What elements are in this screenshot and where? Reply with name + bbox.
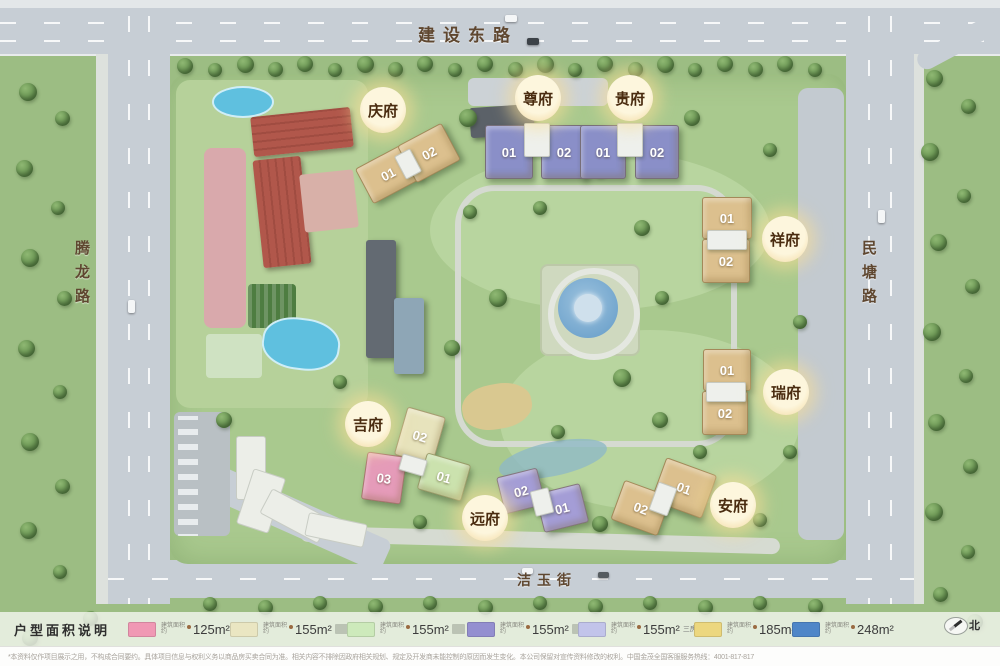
tree: [963, 459, 978, 474]
legend-area-prefix: 建筑面积约: [263, 623, 289, 636]
tree: [388, 62, 403, 77]
estate-badge[interactable]: 尊府: [515, 75, 561, 121]
right-road-label: 民塘路: [858, 240, 879, 312]
tree: [423, 596, 437, 610]
tree: [961, 545, 975, 559]
tree: [237, 56, 254, 73]
tree: [933, 587, 948, 602]
estate-badge[interactable]: 庆府: [360, 87, 406, 133]
swimming-pool-north: [212, 86, 274, 118]
bottom-road-label: 洁玉街: [502, 570, 592, 590]
tree: [268, 62, 283, 77]
tree: [208, 63, 222, 77]
legend-area-value: 125m²: [193, 622, 230, 637]
tree: [444, 340, 460, 356]
fountain-center: [574, 294, 602, 322]
legend-area-prefix: 建筑面积约: [161, 623, 187, 636]
legend-dot-icon: [526, 625, 530, 629]
tree: [508, 62, 523, 77]
legend-area-value: 155m²: [412, 622, 449, 637]
legend-item: 建筑面积约155m²: [347, 619, 465, 639]
tree: [693, 445, 707, 459]
legend-dot-icon: [187, 625, 191, 629]
tree: [808, 63, 822, 77]
tree: [763, 143, 777, 157]
tree: [753, 596, 767, 610]
legend-title: 户型面积说明: [14, 620, 110, 639]
legend-swatch: [128, 622, 156, 637]
tree: [930, 234, 947, 251]
tree: [688, 63, 702, 77]
tree: [463, 205, 477, 219]
sidewalk-left: [96, 54, 108, 604]
left-road: [108, 8, 170, 604]
right-road: [846, 8, 914, 604]
car: [878, 210, 885, 223]
tree: [568, 63, 582, 77]
running-track: [204, 148, 246, 328]
tree: [297, 56, 313, 72]
tree: [926, 70, 943, 87]
car: [598, 572, 609, 578]
tree: [533, 201, 547, 215]
tree: [684, 110, 700, 126]
elevator-core: [617, 123, 643, 157]
top-road-label: 建设东路: [398, 21, 538, 46]
legend-item: 建筑面积约155m²: [467, 619, 585, 639]
legend-dot-icon: [289, 625, 293, 629]
site-plan-map: 0102010201020102010201020201030201 庆府尊府贵…: [0, 0, 1000, 666]
legend-dot-icon: [753, 625, 757, 629]
legend-area-prefix: 建筑面积约: [611, 623, 637, 636]
tree: [652, 412, 668, 428]
tree: [592, 516, 608, 532]
legend-area-value: 155m²: [532, 622, 569, 637]
legend-dot-icon: [851, 625, 855, 629]
tree: [777, 56, 793, 72]
school-courtyard: [299, 169, 359, 232]
legend-item: 建筑面积约155m²三房: [578, 619, 697, 639]
legend-area-prefix: 建筑面积约: [727, 623, 753, 636]
legend-dot-icon: [637, 625, 641, 629]
legend-item: 建筑面积约125m²: [128, 619, 230, 639]
tree: [957, 189, 971, 203]
tree: [965, 279, 980, 294]
tree: [597, 56, 613, 72]
legend-swatch: [230, 622, 258, 637]
east-service-road: [798, 88, 844, 540]
tree: [55, 479, 70, 494]
tree: [717, 56, 733, 72]
legend-dot-icon: [406, 625, 410, 629]
tree: [53, 565, 67, 579]
tree: [177, 58, 193, 74]
tree: [459, 109, 477, 127]
tree: [551, 425, 565, 439]
tree: [657, 56, 674, 73]
legend-swatch: [578, 622, 606, 637]
legend-note-illegible: [452, 624, 465, 634]
tree: [489, 289, 507, 307]
left-road-label: 腾龙路: [71, 240, 92, 312]
legend-item: 建筑面积约155m²: [230, 619, 348, 639]
tree: [961, 99, 976, 114]
tree: [357, 56, 374, 73]
tree: [18, 340, 35, 357]
tree: [448, 63, 462, 77]
legend-note-illegible: [335, 624, 348, 634]
disclaimer-text: *本资料仅作项目展示之用，不构成合同要约。具体项目信息与权利义务以商品房买卖合同…: [8, 652, 754, 662]
legend-area-value: 155m²: [295, 622, 332, 637]
glass-building: [394, 298, 424, 374]
legend-swatch: [694, 622, 722, 637]
parking-lot: [174, 412, 230, 536]
legend-area-value: 248m²: [857, 622, 894, 637]
tree: [655, 291, 669, 305]
north-arrow-icon: [944, 617, 968, 635]
tree: [748, 62, 763, 77]
tree: [923, 323, 941, 341]
legend-item: 建筑面积约248m²: [792, 619, 894, 639]
tree: [634, 220, 650, 236]
legend-area-prefix: 建筑面积约: [825, 623, 851, 636]
tree: [783, 445, 797, 459]
legend-item: 建筑面积约185m²: [694, 619, 796, 639]
tree: [533, 596, 547, 610]
legend-swatch: [792, 622, 820, 637]
office-tower: [366, 240, 396, 358]
tree: [793, 315, 807, 329]
legend-area-prefix: 建筑面积约: [380, 623, 406, 636]
estate-badge[interactable]: 吉府: [345, 401, 391, 447]
tree: [53, 385, 67, 399]
tree: [328, 63, 342, 77]
tree: [313, 596, 327, 610]
tree: [925, 503, 943, 521]
tree: [203, 597, 217, 611]
tree: [613, 369, 631, 387]
tree: [333, 375, 347, 389]
tree: [55, 111, 70, 126]
tree: [20, 522, 37, 539]
tree: [21, 433, 39, 451]
legend-area-value: 185m²: [759, 622, 796, 637]
tree: [413, 515, 427, 529]
elevator-core: [707, 230, 747, 250]
tree: [477, 56, 493, 72]
tree: [51, 201, 65, 215]
north-label: 北: [969, 617, 980, 633]
estate-badge[interactable]: 远府: [462, 495, 508, 541]
tree: [57, 291, 72, 306]
tree: [921, 143, 939, 161]
legend-swatch: [347, 622, 375, 637]
estate-badge[interactable]: 贵府: [607, 75, 653, 121]
legend-area-value: 155m²: [643, 622, 680, 637]
tree: [959, 369, 973, 383]
tree: [216, 412, 232, 428]
tree: [928, 414, 945, 431]
tree: [537, 56, 554, 73]
tree: [643, 596, 657, 610]
estate-badge[interactable]: 祥府: [762, 216, 808, 262]
elevator-core: [706, 382, 746, 402]
tree: [417, 56, 433, 72]
tree: [753, 513, 767, 527]
tree: [16, 160, 33, 177]
estate-badge[interactable]: 瑞府: [763, 369, 809, 415]
tree: [21, 249, 39, 267]
car: [128, 300, 135, 313]
legend-swatch: [467, 622, 495, 637]
estate-badge[interactable]: 安府: [710, 482, 756, 528]
sports-court: [206, 334, 262, 378]
top-curb: [0, 0, 1000, 8]
elevator-core: [524, 123, 550, 157]
tree: [19, 83, 37, 101]
legend-area-prefix: 建筑面积约: [500, 623, 526, 636]
